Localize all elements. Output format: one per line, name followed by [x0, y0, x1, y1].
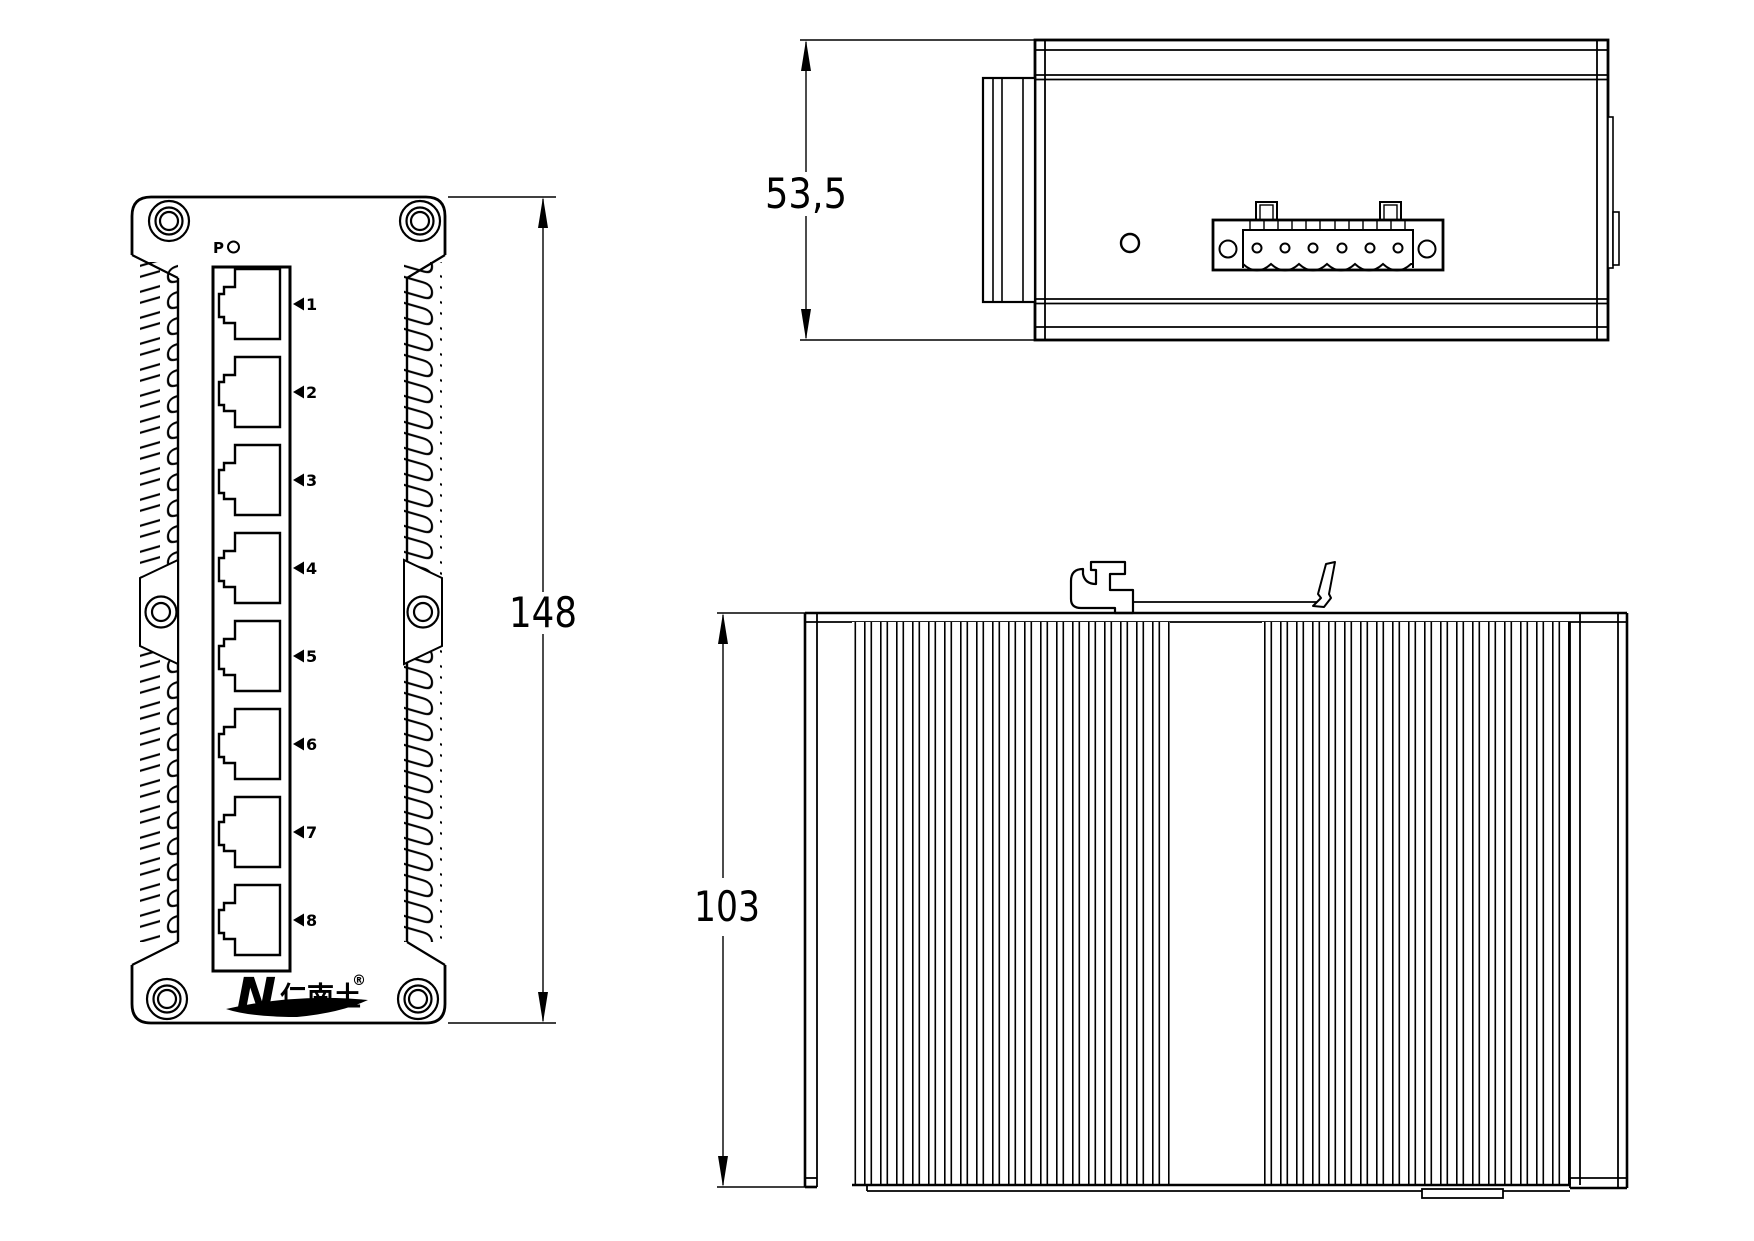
drawing-svg: P 1 2 3 4 5 [0, 0, 1754, 1241]
port-number: 1 [306, 295, 317, 314]
port-number: 4 [306, 559, 317, 578]
port-number: 8 [306, 911, 317, 930]
power-led [228, 242, 239, 253]
port-arrow-icon [293, 386, 304, 399]
dim-arrow-up-icon [801, 40, 811, 71]
front-view: P 1 2 3 4 5 [132, 197, 577, 1024]
port-arrow-icon [293, 562, 304, 575]
dimension-103: 103 [694, 613, 807, 1187]
port-arrow-icon [293, 474, 304, 487]
dim-103-label: 103 [694, 882, 760, 931]
mounting-foot [1422, 1189, 1503, 1198]
dim-arrow-down-icon [801, 309, 811, 340]
power-indicator-label: P [213, 239, 224, 257]
port-arrow-icon [293, 826, 304, 839]
logo-registered-mark: ® [352, 973, 366, 989]
side-view: 103 [694, 562, 1627, 1198]
din-rail-edge-top [1608, 117, 1619, 268]
logo-cjk-text: 仁南土 [280, 982, 361, 1013]
side-connector-block [983, 78, 1035, 302]
dim-arrow-up-icon [718, 613, 728, 644]
device-body-side [805, 613, 1627, 1198]
port-arrow-icon [293, 650, 304, 663]
dim-arrow-down-icon [718, 1156, 728, 1187]
logo-letter: N [236, 968, 276, 1024]
technical-drawing: P 1 2 3 4 5 [0, 0, 1754, 1241]
dimension-148: 148 [448, 197, 577, 1023]
port-number: 5 [306, 647, 317, 666]
dim-arrow-down-icon [538, 992, 548, 1023]
port-number: 2 [306, 383, 317, 402]
heatsink-fins-side [852, 622, 1570, 1185]
grounding-hole [1121, 234, 1139, 252]
port-arrow-icon [293, 298, 304, 311]
mid-tab-left [140, 560, 178, 664]
terminal-screw-left [1220, 241, 1237, 258]
dim-arrow-up-icon [538, 197, 548, 228]
terminal-screw-right [1419, 241, 1436, 258]
port-number: 3 [306, 471, 317, 490]
port-number: 7 [306, 823, 317, 842]
screw-hole-top-right [400, 201, 440, 241]
screw-hole-bottom-right [398, 979, 438, 1019]
port-arrow-icon [293, 914, 304, 927]
mid-tab-right [404, 560, 442, 664]
screw-hole-bottom-left [147, 979, 187, 1019]
dim-53-5-label: 53,5 [765, 169, 847, 218]
device-body-top [1035, 40, 1608, 340]
top-view: 53,5 [765, 40, 1619, 340]
clip-release-lever [1313, 562, 1335, 607]
dim-148-label: 148 [509, 588, 577, 637]
screw-hole-top-left [149, 201, 189, 241]
din-rail-clip [1071, 562, 1335, 613]
port-number: 6 [306, 735, 317, 754]
port-arrow-icon [293, 738, 304, 751]
